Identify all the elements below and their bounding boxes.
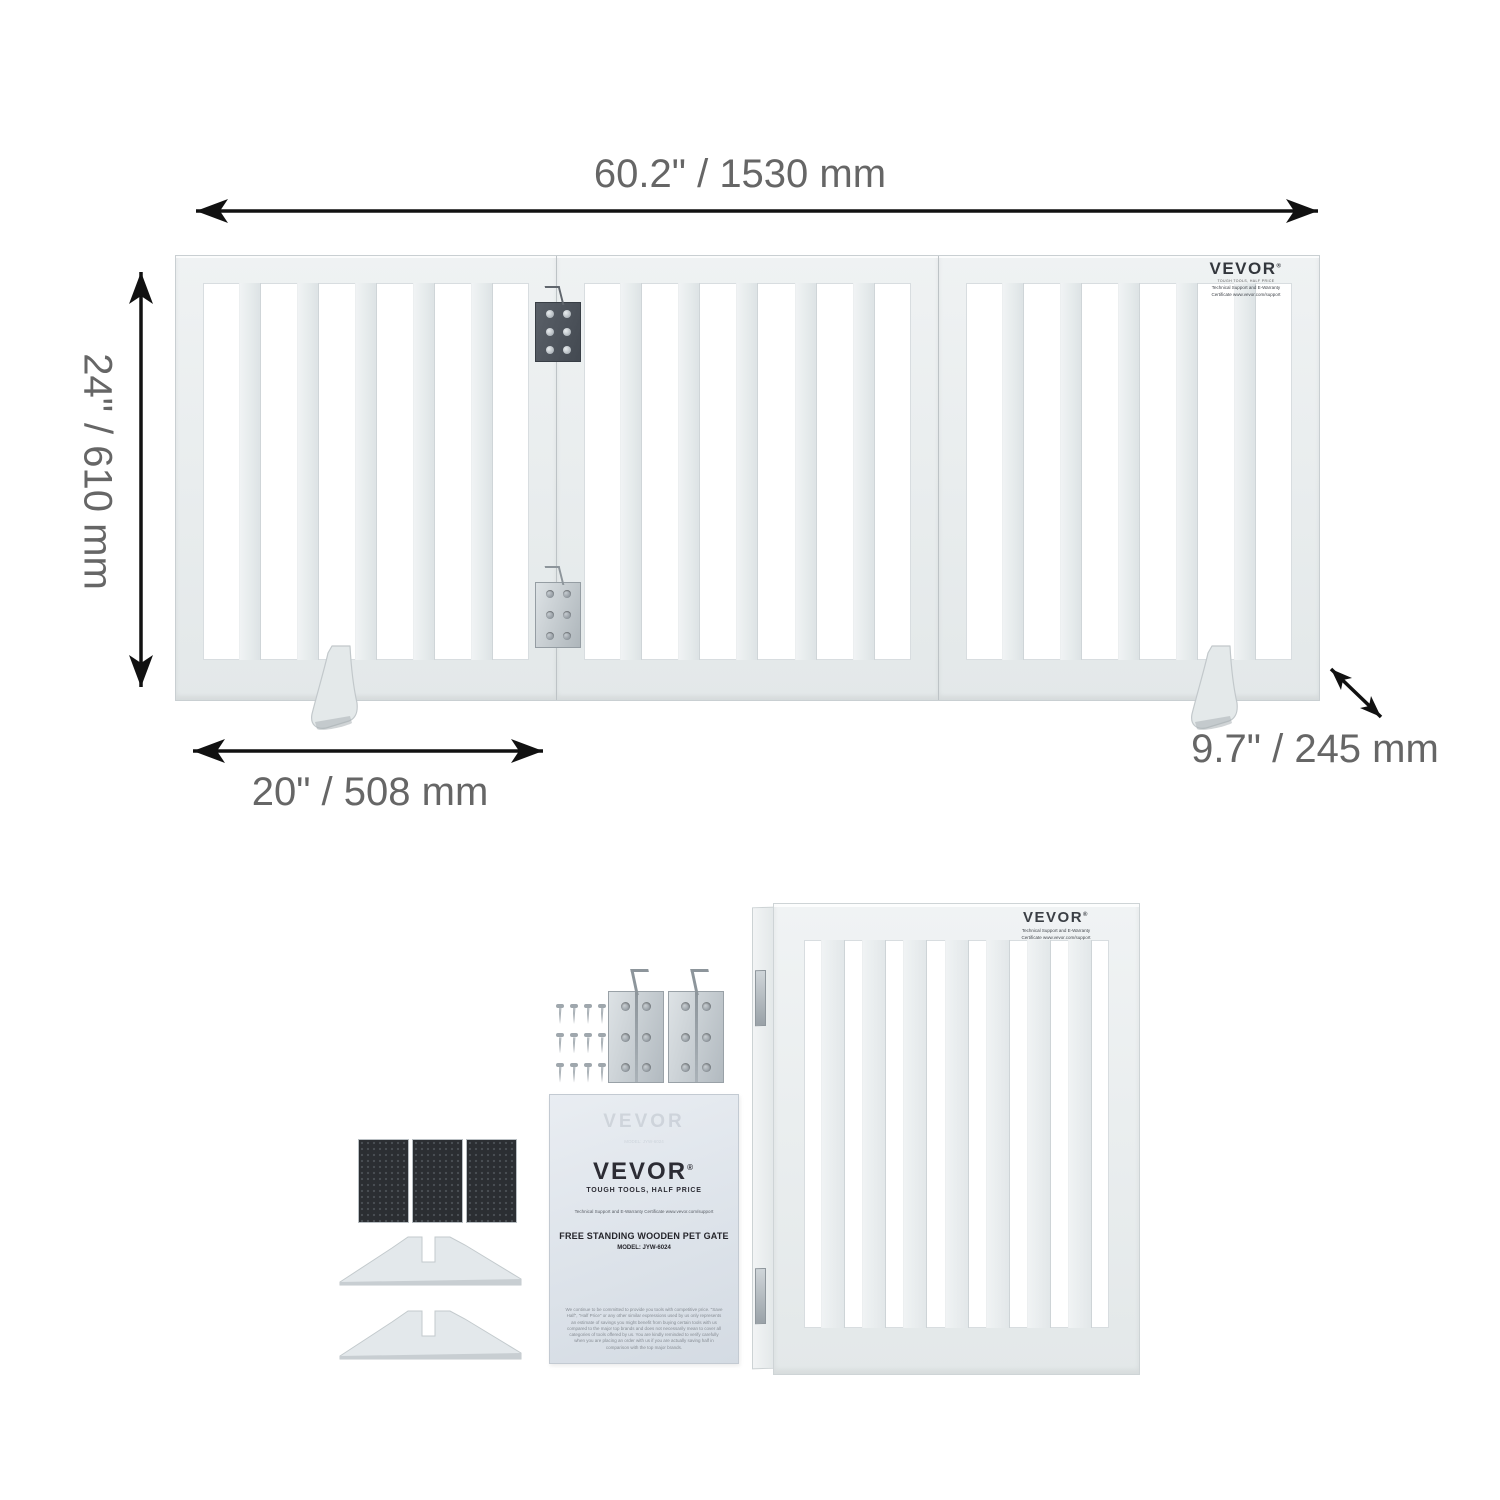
screw-icon [570, 1033, 578, 1054]
screws-grid [556, 1004, 608, 1086]
anti-slip-pads [358, 1139, 517, 1223]
hinge-hole-icon [702, 1002, 711, 1011]
gate-slat [471, 283, 493, 660]
panel-width-arrow [193, 739, 543, 763]
anti-slip-pad [466, 1139, 517, 1223]
gate-panel-2 [556, 256, 937, 700]
registered-mark: ® [1083, 912, 1089, 918]
gate-slat [1002, 283, 1024, 660]
foot-shape [340, 1237, 521, 1285]
product-image: 60.2" / 1530 mm 24" / 610 mm 20" / 508 m… [0, 0, 1500, 1500]
manual-ghost-model: MODEL: JYW-6024 [550, 1139, 738, 1144]
hinge-pin-icon [690, 969, 714, 995]
folded-panel-window [804, 940, 1109, 1328]
gate-slat [821, 940, 845, 1328]
gate-slat [736, 283, 758, 660]
screw-icon [556, 1033, 564, 1054]
gate-foot-right [1187, 645, 1239, 731]
brand-support-line2: Certificate www.vevor.com/support [1191, 292, 1301, 297]
hinge-screw-icon [563, 310, 571, 318]
hinge-hole-icon [681, 1002, 690, 1011]
manual-title: FREE STANDING WOODEN PET GATE [550, 1231, 738, 1241]
screw-icon [570, 1004, 578, 1025]
manual-tagline: TOUGH TOOLS, HALF PRICE [550, 1187, 738, 1194]
support-foot-1 [338, 1232, 523, 1288]
gate-slat [620, 283, 642, 660]
hinge-screw-icon [546, 346, 554, 354]
gate-brand-label: VEVOR® TOUGH TOOLS, HALF PRICE Technical… [1191, 259, 1301, 297]
gate-panel-1-window [203, 283, 529, 660]
manual-model: MODEL: JYW-6024 [550, 1245, 738, 1251]
depth-arrow [1331, 669, 1381, 717]
gate-slat [297, 283, 319, 660]
gate-panel-3-window [966, 283, 1292, 660]
panel-width-dimension-label: 20" / 508 mm [60, 770, 680, 815]
brand-support-line1: Technical Support and E-Warranty [1001, 928, 1111, 933]
hinge-screw-icon [563, 328, 571, 336]
folded-gate-panel: VEVOR® Technical Support and E-Warranty … [752, 903, 1140, 1375]
anti-slip-pad [412, 1139, 463, 1223]
hinge-screw-icon [563, 590, 571, 598]
width-dimension-label: 60.2" / 1530 mm [430, 152, 1050, 197]
vevor-logo: VEVOR® [1001, 909, 1111, 926]
hinge-hole-icon [702, 1033, 711, 1042]
gate-slat [1027, 940, 1051, 1328]
registered-mark: ® [1277, 263, 1283, 269]
gate-slat [903, 940, 927, 1328]
hinge-hole-icon [681, 1033, 690, 1042]
package-hinge-1 [608, 991, 664, 1083]
registered-mark: ® [687, 1163, 695, 1172]
gate-hinge-top [535, 302, 581, 362]
screw-icon [598, 1063, 606, 1084]
gate-slat [986, 940, 1010, 1328]
gate-slat [355, 283, 377, 660]
brand-support-line1: Technical Support and E-Warranty [1191, 285, 1301, 290]
brand-support-line2: Certificate www.vevor.com/support [1001, 935, 1111, 940]
hinge-screw-icon [563, 632, 571, 640]
anti-slip-pad [358, 1139, 409, 1223]
gate-panel-1 [176, 256, 556, 700]
height-dimension-label: 24" / 610 mm [75, 322, 120, 622]
hinge-screw-icon [546, 328, 554, 336]
folded-panel-brand-label: VEVOR® Technical Support and E-Warranty … [1001, 909, 1111, 941]
screw-icon [584, 1004, 592, 1025]
hinge-leaf-icon [755, 970, 766, 1026]
gate-slat [1234, 283, 1256, 660]
gate-slat [413, 283, 435, 660]
gate-slat [945, 940, 969, 1328]
gate-front-view: VEVOR® TOUGH TOOLS, HALF PRICE Technical… [175, 255, 1320, 701]
foot-shape [340, 1311, 521, 1359]
gate-slat [239, 283, 261, 660]
hinge-hole-icon [642, 1063, 651, 1072]
hinge-hole-icon [621, 1033, 630, 1042]
gate-foot-left [307, 645, 359, 731]
hinge-screw-icon [546, 310, 554, 318]
hinge-leaf-icon [755, 1268, 766, 1324]
gate-slat [853, 283, 875, 660]
height-arrow [129, 272, 153, 687]
screw-icon [584, 1033, 592, 1054]
gate-slat [795, 283, 817, 660]
gate-panel-3: VEVOR® TOUGH TOOLS, HALF PRICE Technical… [938, 256, 1319, 700]
hinge-pin-icon [630, 969, 654, 995]
hinge-hole-icon [621, 1002, 630, 1011]
manual-ghost-logo: VEVOR [550, 1111, 738, 1133]
gate-slat [1068, 940, 1092, 1328]
hinge-screw-icon [563, 611, 571, 619]
gate-slat [1060, 283, 1082, 660]
hinge-screw-icon [546, 611, 554, 619]
screw-icon [556, 1004, 564, 1025]
foot-shape [312, 646, 358, 728]
hinge-hole-icon [621, 1063, 630, 1072]
instruction-manual: VEVOR MODEL: JYW-6024 VEVOR® TOUGH TOOLS… [549, 1094, 739, 1364]
hinge-screw-icon [546, 632, 554, 640]
screw-icon [598, 1004, 606, 1025]
depth-dimension-label: 9.7" / 245 mm [1120, 727, 1500, 772]
manual-support-line: Technical Support and E-Warranty Certifi… [550, 1209, 738, 1214]
manual-disclaimer: We continue to be committed to provide y… [565, 1307, 723, 1351]
screw-icon [584, 1063, 592, 1084]
hinge-hole-icon [681, 1063, 690, 1072]
gate-slat [862, 940, 886, 1328]
manual-logo: VEVOR® [550, 1158, 738, 1186]
hinge-hole-icon [642, 1002, 651, 1011]
brand-tagline: TOUGH TOOLS, HALF PRICE [1191, 279, 1301, 283]
package-hinge-2 [668, 991, 724, 1083]
hinge-screw-icon [563, 346, 571, 354]
width-arrow [196, 199, 1318, 223]
hinge-hole-icon [702, 1063, 711, 1072]
support-foot-2 [338, 1306, 523, 1362]
gate-slat [1176, 283, 1198, 660]
gate-slat [678, 283, 700, 660]
hinge-screw-icon [546, 590, 554, 598]
vevor-logo: VEVOR® [1191, 259, 1301, 279]
screw-icon [598, 1033, 606, 1054]
folded-panel-front-face: VEVOR® Technical Support and E-Warranty … [773, 903, 1140, 1375]
gate-panel-2-window [584, 283, 910, 660]
gate-hinge-bottom [535, 582, 581, 648]
foot-shape [1192, 646, 1238, 728]
hinge-hole-icon [642, 1033, 651, 1042]
screw-icon [570, 1063, 578, 1084]
screw-icon [556, 1063, 564, 1084]
gate-slat [1118, 283, 1140, 660]
